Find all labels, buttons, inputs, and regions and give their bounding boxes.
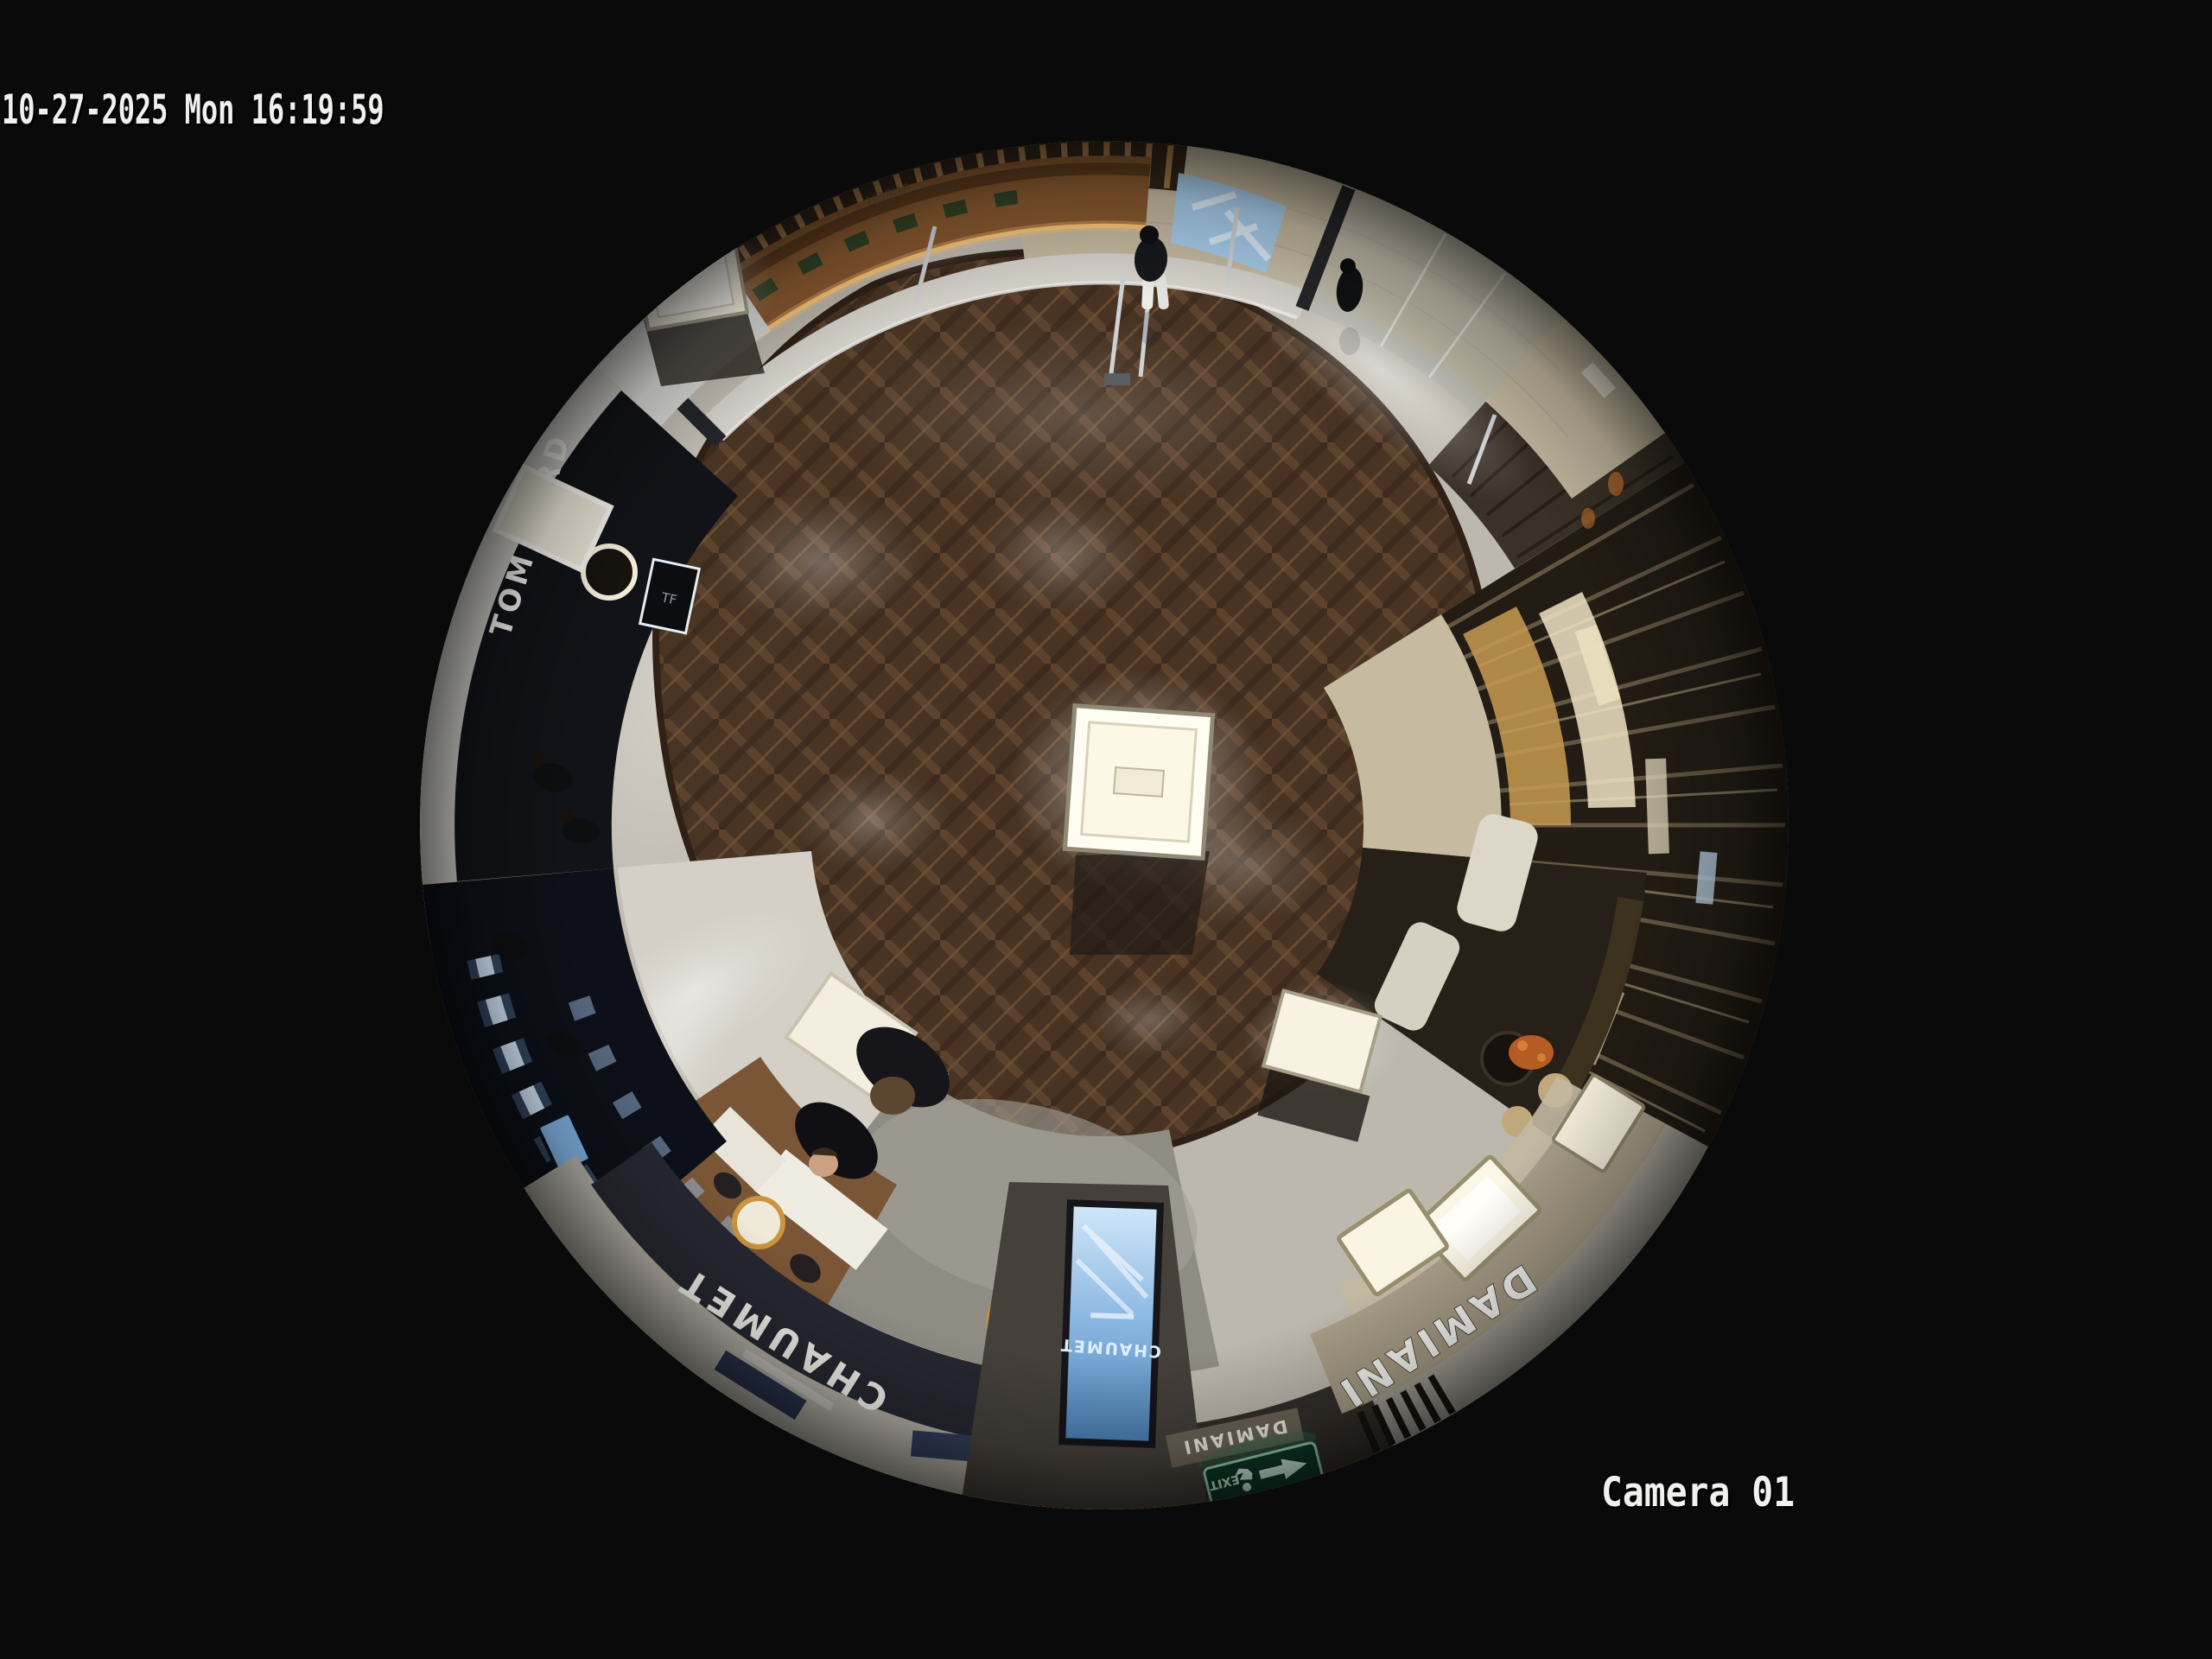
osd-timestamp: 10-27-2025 Mon 16:19:59 [2, 86, 385, 134]
fisheye-view: BURCH TOM FORD TF [0, 0, 2212, 1659]
lens-vignette [420, 141, 1789, 1510]
cctv-frame: BURCH TOM FORD TF [0, 0, 2212, 1659]
osd-camera-label: Camera 01 [1601, 1469, 1795, 1516]
